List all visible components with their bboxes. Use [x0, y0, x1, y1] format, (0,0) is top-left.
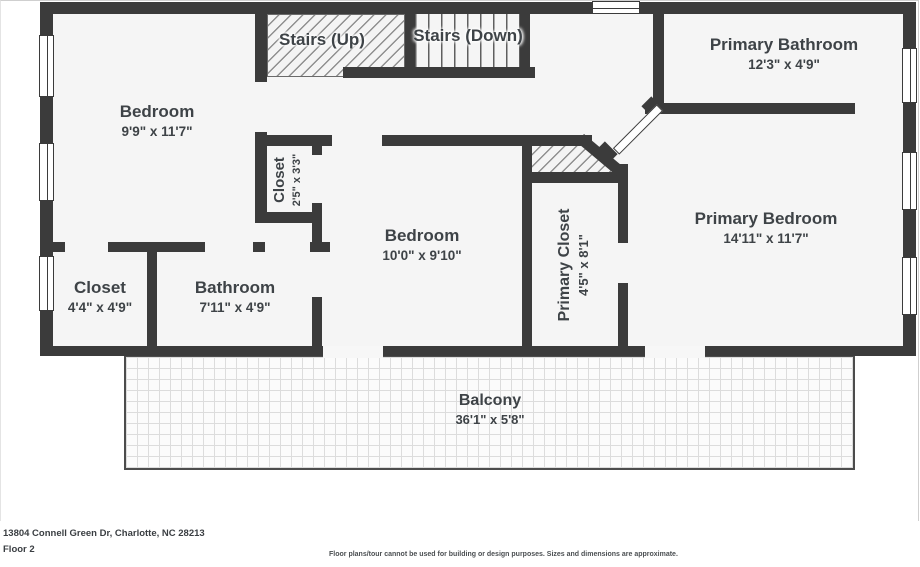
wall [343, 67, 535, 78]
room-label-bathroom: Bathroom 7'11" x 4'9" [195, 277, 275, 317]
room-label-primary-bathroom: Primary Bathroom 12'3" x 4'9" [710, 34, 858, 74]
wall [382, 135, 533, 146]
wall [312, 135, 322, 155]
wall [312, 297, 322, 347]
floor-number-text: Floor 2 [3, 544, 35, 555]
room-label-closet-small: Closet 2'5" x 3'3" [270, 154, 304, 206]
room-label-primary-bedroom: Primary Bedroom 14'11" x 11'7" [695, 208, 838, 248]
wall [255, 212, 322, 223]
window [39, 256, 54, 311]
window [39, 35, 54, 97]
window [902, 257, 917, 315]
door-opening [645, 346, 705, 358]
wall [253, 242, 265, 252]
address-text: 13804 Connell Green Dr, Charlotte, NC 28… [3, 528, 205, 539]
room-label-primary-closet: Primary Closet 4'5" x 8'1" [555, 209, 593, 322]
door-opening [323, 346, 383, 358]
room-label-stairs-down: Stairs (Down) [413, 26, 523, 46]
wall [653, 2, 664, 103]
room-label-balcony: Balcony 36'1" x 5'8" [455, 391, 524, 429]
wall [618, 164, 628, 243]
window [902, 48, 917, 103]
room-label-bedroom-1: Bedroom 9'9" x 11'7" [120, 101, 195, 141]
room-label-bedroom-2: Bedroom 10'0" x 9'10" [382, 225, 461, 265]
disclaimer-text: Floor plans/tour cannot be used for buil… [329, 551, 678, 558]
wall [645, 103, 855, 114]
room-label-closet-2: Closet 4'4" x 4'9" [68, 277, 132, 317]
wall [522, 138, 532, 347]
window [902, 152, 917, 210]
wall [40, 242, 65, 252]
room-label-stairs-up: Stairs (Up) [279, 30, 365, 50]
floor-plan-page: Bedroom 9'9" x 11'7" Stairs (Up) Stairs … [0, 0, 920, 567]
window [39, 143, 54, 201]
wall [618, 283, 628, 347]
wall [310, 242, 330, 252]
wall [147, 242, 157, 347]
window [592, 1, 640, 14]
wall [522, 172, 628, 183]
wall [255, 2, 267, 82]
